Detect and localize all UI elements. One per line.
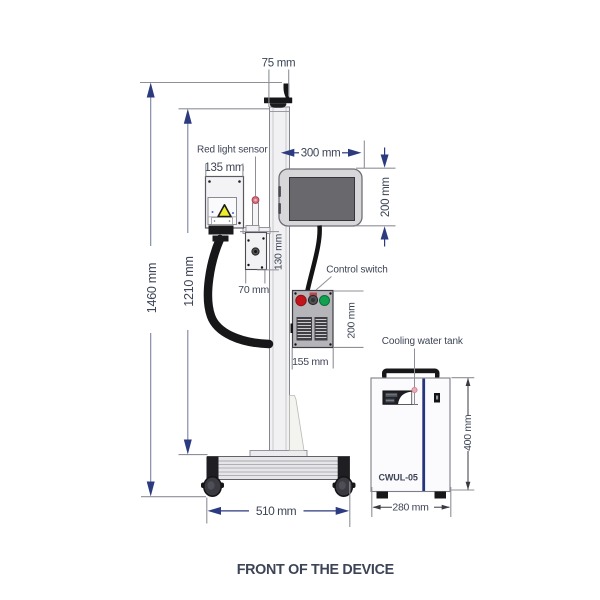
svg-text:130 mm: 130 mm	[272, 233, 284, 270]
svg-text:Control switch: Control switch	[326, 265, 387, 276]
svg-text:1460 mm: 1460 mm	[145, 263, 159, 313]
svg-text:200 mm: 200 mm	[380, 177, 392, 217]
svg-text:155 mm: 155 mm	[292, 356, 329, 368]
svg-text:400 mm: 400 mm	[462, 414, 474, 451]
svg-text:300 mm: 300 mm	[301, 148, 341, 160]
svg-text:1210 mm: 1210 mm	[182, 256, 196, 306]
svg-text:510 mm: 510 mm	[256, 504, 297, 518]
svg-text:280 mm: 280 mm	[392, 502, 429, 514]
svg-text:70 mm: 70 mm	[238, 284, 269, 296]
svg-text:Cooling water tank: Cooling water tank	[382, 336, 464, 347]
svg-text:135 mm: 135 mm	[204, 162, 244, 174]
svg-text:200 mm: 200 mm	[345, 302, 357, 339]
svg-text:Red light sensor: Red light sensor	[197, 145, 268, 156]
svg-text:75 mm: 75 mm	[262, 58, 296, 70]
svg-text:FRONT OF THE DEVICE: FRONT OF THE DEVICE	[237, 562, 394, 578]
svg-text:CWUL-05: CWUL-05	[379, 473, 418, 483]
